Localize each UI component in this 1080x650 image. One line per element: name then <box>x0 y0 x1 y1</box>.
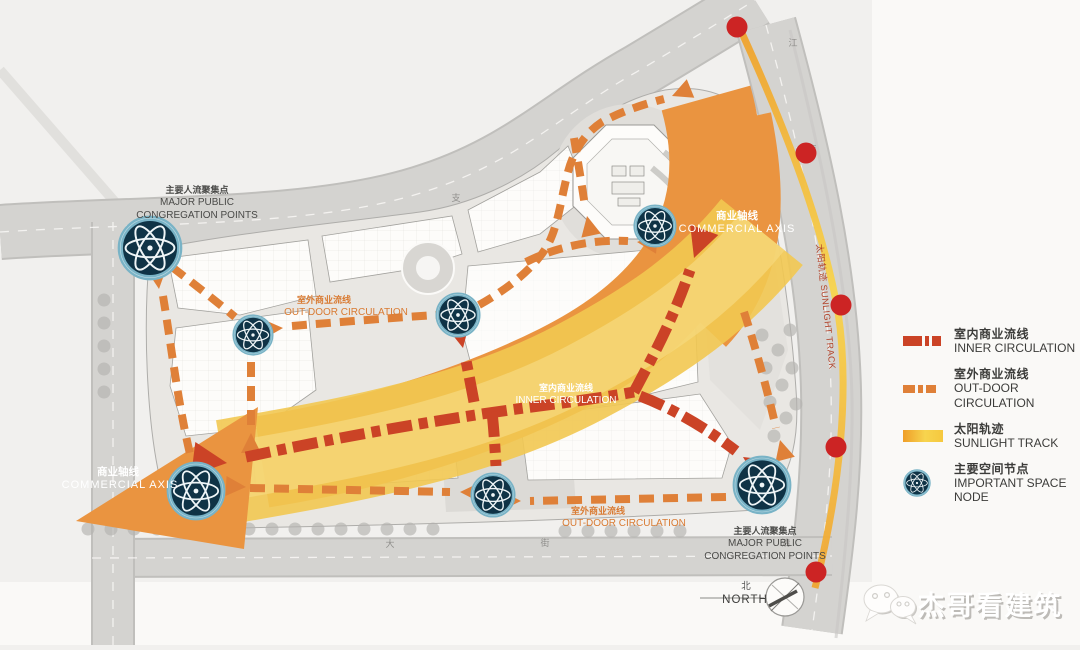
inner-circulation-swatch <box>903 336 945 346</box>
outdoor-circulation-swatch <box>903 385 945 393</box>
tree <box>266 523 279 536</box>
tree <box>427 523 440 536</box>
sun-position-dot <box>826 437 847 458</box>
tree <box>381 523 394 536</box>
label-en: OUT-DOOR CIRCULATION <box>284 307 408 318</box>
tree <box>780 412 793 425</box>
space-node <box>169 464 223 518</box>
tree <box>786 362 799 375</box>
site-plan-stage: 支江南大街清 <box>0 0 1080 645</box>
legend-label-en: OUT-DOOR CIRCULATION <box>954 381 1079 409</box>
label-zh: 主要人流聚集点 <box>165 184 228 195</box>
road-name-glyph: 大 <box>385 538 394 549</box>
legend-label-en: SUNLIGHT TRACK <box>954 436 1058 450</box>
legend-label-en: INNER CIRCULATION <box>954 341 1075 355</box>
space-node <box>472 474 513 515</box>
label-zh: 室内商业流线 <box>539 382 593 393</box>
court-circle-inner <box>416 256 440 280</box>
legend: 室内商业流线 INNER CIRCULATION 室外商业流线 OUT-DOOR… <box>903 327 1079 517</box>
north-label-zh: 北 <box>741 581 751 592</box>
label-zh: 商业轴线 <box>716 209 758 222</box>
label-en2: CONGREGATION POINTS <box>704 551 826 562</box>
legend-label-zh: 太阳轨迹 <box>954 422 1058 436</box>
north-label-en: NORTH <box>722 594 768 606</box>
tree <box>98 340 111 353</box>
label-en: INNER CIRCULATION <box>516 395 617 406</box>
tree <box>756 329 769 342</box>
watermark-text: 杰哥看建筑 <box>918 590 1063 621</box>
label-en2: CONGREGATION POINTS <box>136 210 258 221</box>
tree <box>289 523 302 536</box>
legend-label-en: IMPORTANT SPACE NODE <box>954 476 1079 504</box>
tree <box>784 324 797 337</box>
legend-label-zh: 室内商业流线 <box>954 327 1075 341</box>
space-node <box>120 218 179 277</box>
tree <box>335 523 348 536</box>
legend-item-outdoor-circulation: 室外商业流线 OUT-DOOR CIRCULATION <box>903 367 1079 409</box>
label-en1: MAJOR PUBLIC <box>160 197 234 208</box>
sunlight-track-swatch <box>903 430 945 442</box>
atom-icon <box>903 469 931 497</box>
tree <box>358 523 371 536</box>
label-zh: 商业轴线 <box>97 465 139 478</box>
background-right <box>872 0 1080 645</box>
tree <box>82 523 95 536</box>
label-zh: 主要人流聚集点 <box>733 525 796 536</box>
label-en: OUT-DOOR CIRCULATION <box>562 518 686 529</box>
site-plan-svg: 支江南大街清 <box>0 0 1080 645</box>
legend-label-zh: 室外商业流线 <box>954 367 1079 381</box>
space-node-swatch <box>903 469 945 497</box>
tree <box>98 294 111 307</box>
label-en1: MAJOR PUBLIC <box>728 538 802 549</box>
tree <box>98 363 111 376</box>
label-en: COMMERCIAL AXIS <box>62 479 179 491</box>
tree <box>790 398 803 411</box>
legend-item-sunlight-track: 太阳轨迹 SUNLIGHT TRACK <box>903 422 1079 450</box>
space-node <box>635 206 675 246</box>
sun-position-dot <box>796 143 817 164</box>
sun-position-dot <box>727 17 748 38</box>
road-name-glyph: 街 <box>540 537 549 548</box>
tree <box>98 317 111 330</box>
label-zh: 室外商业流线 <box>571 505 625 516</box>
space-node <box>735 458 789 512</box>
legend-item-inner-circulation: 室内商业流线 INNER CIRCULATION <box>903 327 1079 355</box>
road-name-glyph: 支 <box>451 192 460 203</box>
legend-label-zh: 主要空间节点 <box>954 462 1079 476</box>
tree <box>404 523 417 536</box>
legend-item-space-node: 主要空间节点 IMPORTANT SPACE NODE <box>903 462 1079 504</box>
tree <box>776 379 789 392</box>
space-node <box>437 294 478 335</box>
tree <box>98 386 111 399</box>
label-en: COMMERCIAL AXIS <box>679 223 796 235</box>
label-zh: 室外商业流线 <box>297 294 351 305</box>
sun-position-dot <box>831 295 852 316</box>
sun-position-dot <box>806 562 827 583</box>
tree <box>772 344 785 357</box>
space-node <box>234 316 272 354</box>
road-name-glyph: 江 <box>788 38 797 48</box>
tree <box>312 523 325 536</box>
tree <box>768 430 781 443</box>
